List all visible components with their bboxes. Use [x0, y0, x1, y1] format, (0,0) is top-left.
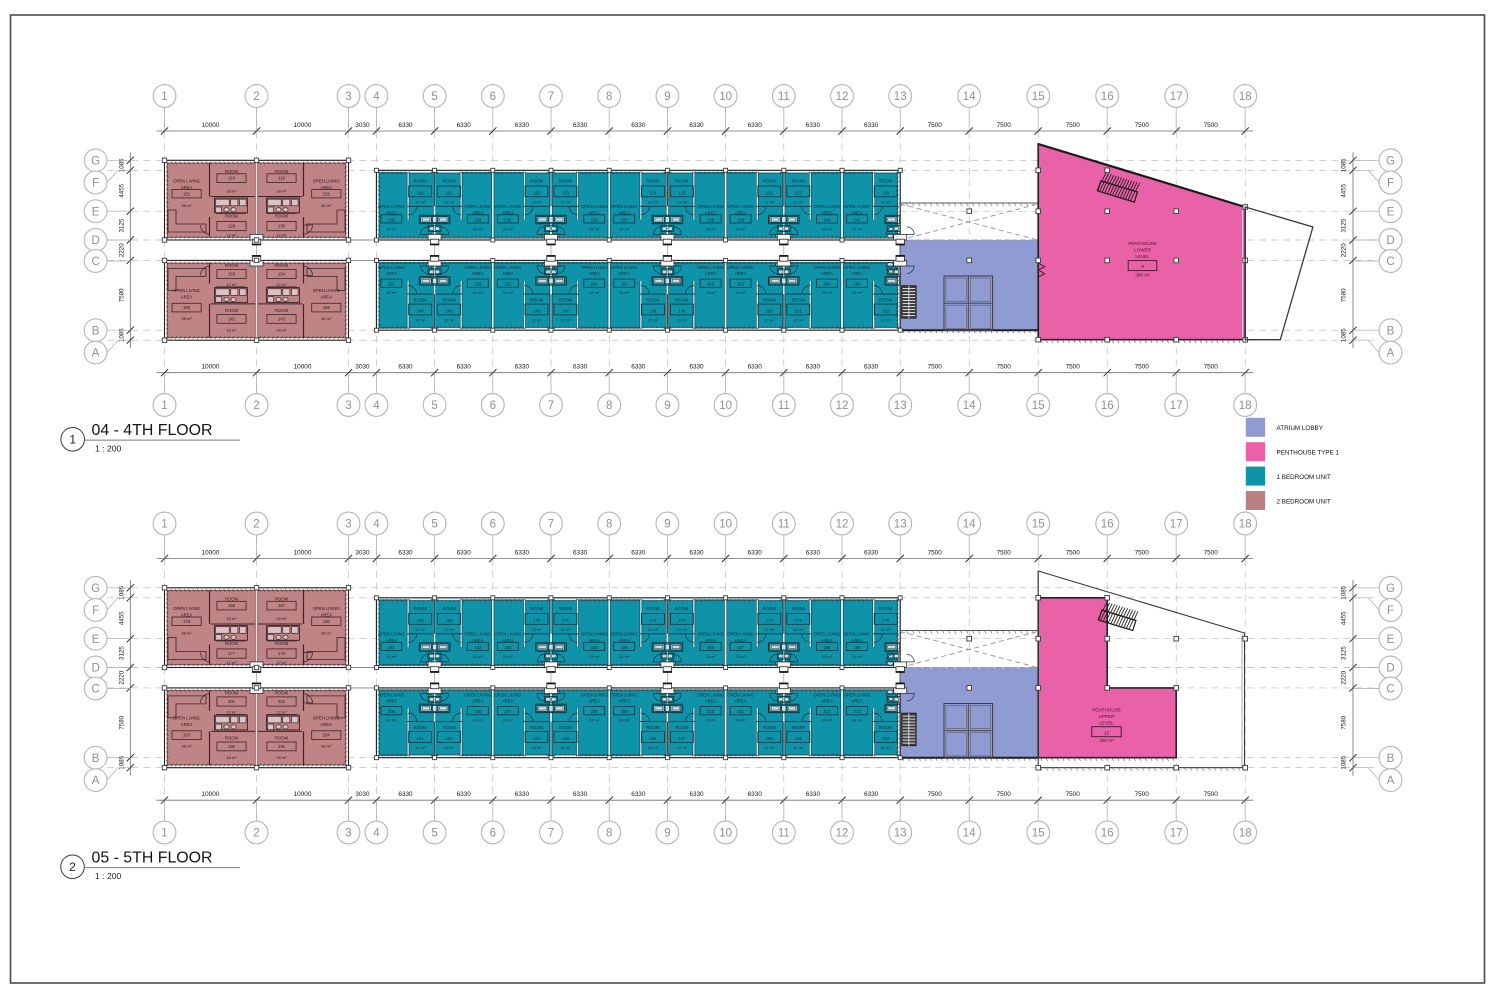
svg-text:7580: 7580 — [1341, 288, 1348, 302]
svg-text:4: 4 — [373, 91, 380, 103]
svg-text:154: 154 — [278, 272, 286, 277]
svg-text:ROOM: ROOM — [559, 179, 573, 184]
svg-text:ROOM: ROOM — [225, 308, 239, 313]
svg-text:132: 132 — [323, 191, 331, 196]
svg-text:2: 2 — [253, 828, 259, 840]
svg-text:38 m²: 38 m² — [321, 631, 332, 636]
svg-text:LEVEL: LEVEL — [1135, 254, 1150, 259]
svg-text:6330: 6330 — [689, 122, 704, 129]
svg-text:ROOM: ROOM — [559, 606, 573, 611]
svg-text:OPEN LIVING: OPEN LIVING — [378, 265, 405, 270]
svg-text:ROOM: ROOM — [559, 297, 573, 302]
svg-text:ROOM: ROOM — [414, 606, 428, 611]
svg-text:OPEN LIVING: OPEN LIVING — [727, 204, 754, 209]
svg-text:D: D — [91, 663, 99, 675]
svg-text:AREA: AREA — [321, 612, 333, 617]
svg-text:ROOM: ROOM — [763, 606, 777, 611]
svg-text:38 m²: 38 m² — [321, 203, 332, 208]
svg-text:193: 193 — [446, 736, 454, 741]
svg-text:24 m²: 24 m² — [473, 227, 484, 232]
svg-text:1085: 1085 — [1341, 328, 1348, 342]
svg-text:398 m²: 398 m² — [1135, 272, 1150, 277]
svg-text:E: E — [92, 634, 100, 646]
svg-text:24 m²: 24 m² — [852, 718, 863, 723]
svg-text:38 m²: 38 m² — [181, 316, 192, 321]
svg-text:OPEN LIVING: OPEN LIVING — [727, 692, 754, 697]
svg-text:B: B — [92, 325, 100, 337]
svg-text:10000: 10000 — [202, 549, 220, 556]
svg-text:OPEN LIVING: OPEN LIVING — [814, 204, 841, 209]
svg-text:17: 17 — [1170, 91, 1183, 103]
svg-text:A: A — [1387, 775, 1395, 787]
svg-text:E: E — [1387, 634, 1395, 646]
svg-text:ROOM: ROOM — [879, 725, 893, 730]
svg-text:OPEN LIVING: OPEN LIVING — [313, 606, 340, 611]
svg-text:AREA: AREA — [321, 722, 333, 727]
svg-text:5: 5 — [431, 400, 437, 412]
svg-text:18: 18 — [1239, 519, 1252, 531]
svg-text:6330: 6330 — [689, 791, 704, 798]
svg-text:6330: 6330 — [806, 122, 821, 129]
svg-text:12 m²: 12 m² — [444, 627, 455, 632]
svg-text:15: 15 — [1032, 828, 1045, 840]
svg-text:4455: 4455 — [1340, 611, 1347, 625]
svg-text:137: 137 — [621, 217, 629, 222]
svg-text:ROOM: ROOM — [646, 725, 660, 730]
svg-text:12 m²: 12 m² — [560, 317, 571, 322]
svg-text:AREA: AREA — [386, 699, 398, 704]
svg-text:18 m²: 18 m² — [276, 328, 287, 333]
svg-text:2220: 2220 — [1341, 243, 1348, 257]
svg-text:4455: 4455 — [118, 611, 125, 625]
svg-text:12 m²: 12 m² — [648, 627, 659, 632]
svg-text:184: 184 — [591, 645, 599, 650]
svg-text:10: 10 — [719, 519, 732, 531]
svg-text:24 m²: 24 m² — [386, 654, 397, 659]
svg-text:5: 5 — [431, 91, 437, 103]
svg-text:OPEN LIVING: OPEN LIVING — [378, 632, 405, 637]
svg-text:24 m²: 24 m² — [822, 718, 833, 723]
svg-text:6330: 6330 — [515, 791, 530, 798]
svg-text:125: 125 — [678, 190, 686, 195]
svg-text:16: 16 — [1101, 519, 1114, 531]
svg-text:7: 7 — [548, 519, 554, 531]
svg-text:1085: 1085 — [1341, 585, 1348, 599]
svg-text:7500: 7500 — [1066, 791, 1081, 798]
svg-text:12: 12 — [1104, 730, 1110, 735]
svg-text:7: 7 — [548, 91, 554, 103]
svg-text:139: 139 — [737, 217, 745, 222]
svg-text:PENTHOUSE: PENTHOUSE — [1092, 708, 1121, 713]
svg-text:12 m²: 12 m² — [881, 199, 892, 204]
svg-text:18: 18 — [1239, 91, 1252, 103]
svg-text:12 m²: 12 m² — [226, 660, 237, 665]
svg-text:15: 15 — [1032, 91, 1045, 103]
svg-text:119: 119 — [278, 176, 285, 181]
svg-text:3030: 3030 — [355, 364, 370, 371]
svg-text:141: 141 — [854, 217, 862, 222]
svg-text:10: 10 — [719, 828, 732, 840]
svg-text:AREA: AREA — [735, 271, 747, 276]
svg-text:12 m²: 12 m² — [648, 745, 659, 750]
svg-text:ROOM: ROOM — [530, 725, 544, 730]
svg-text:24 m²: 24 m² — [705, 718, 716, 723]
svg-text:7500: 7500 — [1066, 549, 1081, 556]
svg-text:OPEN LIVING: OPEN LIVING — [378, 204, 405, 209]
svg-text:7580: 7580 — [119, 715, 126, 729]
svg-text:6330: 6330 — [689, 549, 704, 556]
svg-text:ROOM: ROOM — [879, 606, 893, 611]
svg-text:12 m²: 12 m² — [560, 745, 571, 750]
svg-text:152: 152 — [882, 308, 890, 313]
svg-text:OPEN LIVING: OPEN LIVING — [844, 265, 871, 270]
svg-text:6330: 6330 — [457, 122, 472, 129]
svg-text:10000: 10000 — [294, 122, 312, 129]
svg-text:24 m²: 24 m² — [386, 718, 397, 723]
svg-text:OPEN LIVING: OPEN LIVING — [313, 179, 340, 184]
svg-text:203: 203 — [183, 733, 191, 738]
svg-text:176: 176 — [882, 618, 890, 623]
svg-text:4455: 4455 — [1341, 183, 1348, 197]
svg-text:134: 134 — [474, 217, 482, 222]
svg-text:159: 159 — [504, 282, 512, 287]
svg-text:AREA: AREA — [705, 699, 717, 704]
svg-text:24 m²: 24 m² — [386, 290, 397, 295]
svg-text:10000: 10000 — [202, 791, 220, 798]
svg-text:7500: 7500 — [1066, 364, 1081, 371]
svg-text:160: 160 — [591, 282, 599, 287]
svg-text:10000: 10000 — [294, 364, 312, 371]
svg-text:153: 153 — [228, 272, 236, 277]
svg-text:12 m²: 12 m² — [648, 317, 659, 322]
svg-text:24 m²: 24 m² — [619, 227, 630, 232]
svg-text:ROOM: ROOM — [763, 179, 777, 184]
svg-text:LEVEL: LEVEL — [1099, 721, 1114, 726]
svg-text:7500: 7500 — [1135, 549, 1150, 556]
svg-text:145: 145 — [446, 308, 454, 313]
svg-text:ROOM: ROOM — [443, 725, 457, 730]
svg-text:AREA: AREA — [618, 699, 630, 704]
svg-text:171: 171 — [562, 618, 570, 623]
svg-text:ROOM: ROOM — [225, 214, 239, 219]
svg-text:136: 136 — [591, 217, 599, 222]
svg-text:6: 6 — [490, 828, 496, 840]
svg-text:12 m²: 12 m² — [764, 745, 775, 750]
svg-text:143: 143 — [278, 317, 286, 322]
svg-text:18: 18 — [1239, 828, 1252, 840]
svg-text:12 m²: 12 m² — [226, 232, 237, 237]
svg-text:1: 1 — [69, 433, 76, 447]
svg-text:207: 207 — [504, 709, 512, 714]
svg-text:3125: 3125 — [1341, 646, 1348, 660]
svg-text:6330: 6330 — [573, 364, 588, 371]
svg-text:ROOM: ROOM — [879, 179, 893, 184]
svg-text:7500: 7500 — [1204, 791, 1219, 798]
svg-text:12 m²: 12 m² — [276, 660, 287, 665]
svg-text:D: D — [1386, 663, 1394, 675]
svg-text:12 m²: 12 m² — [276, 282, 287, 287]
svg-text:AREA: AREA — [321, 185, 333, 190]
svg-text:7500: 7500 — [997, 549, 1012, 556]
svg-text:194: 194 — [533, 736, 541, 741]
svg-text:10000: 10000 — [294, 791, 312, 798]
svg-text:180: 180 — [323, 619, 331, 624]
svg-text:6330: 6330 — [806, 791, 821, 798]
svg-text:AREA: AREA — [705, 271, 717, 276]
svg-text:10000: 10000 — [202, 364, 220, 371]
svg-text:ROOM: ROOM — [530, 606, 544, 611]
svg-text:ROOM: ROOM — [646, 297, 660, 302]
svg-text:8: 8 — [606, 91, 612, 103]
svg-text:213: 213 — [854, 709, 862, 714]
svg-text:205: 205 — [388, 709, 396, 714]
svg-text:C: C — [1386, 256, 1394, 268]
svg-text:16: 16 — [1101, 91, 1114, 103]
svg-text:OPEN LIVING: OPEN LIVING — [464, 204, 491, 209]
svg-text:123: 123 — [562, 190, 570, 195]
svg-text:6330: 6330 — [806, 549, 821, 556]
svg-text:12 m²: 12 m² — [560, 199, 571, 204]
svg-text:6: 6 — [490, 91, 496, 103]
svg-text:4: 4 — [373, 519, 380, 531]
svg-text:AREA: AREA — [588, 271, 600, 276]
svg-text:2: 2 — [69, 860, 76, 874]
svg-text:6330: 6330 — [631, 791, 646, 798]
svg-text:133: 133 — [388, 217, 396, 222]
svg-text:165: 165 — [854, 282, 862, 287]
svg-text:7500: 7500 — [1135, 122, 1150, 129]
svg-text:ROOM: ROOM — [414, 725, 428, 730]
svg-text:D: D — [1386, 235, 1394, 247]
svg-text:6330: 6330 — [748, 122, 763, 129]
svg-text:ROOM: ROOM — [763, 725, 777, 730]
svg-text:12 m²: 12 m² — [415, 745, 426, 750]
svg-text:ROOM: ROOM — [443, 179, 457, 184]
svg-text:A: A — [1387, 348, 1395, 360]
svg-text:12 m²: 12 m² — [276, 232, 287, 237]
svg-text:3: 3 — [345, 519, 351, 531]
svg-text:12 m²: 12 m² — [531, 627, 542, 632]
svg-text:AREA: AREA — [851, 271, 863, 276]
svg-text:6330: 6330 — [748, 364, 763, 371]
svg-text:129: 129 — [228, 224, 236, 229]
svg-text:11: 11 — [778, 519, 790, 531]
svg-text:2220: 2220 — [1341, 670, 1348, 684]
svg-text:C: C — [91, 684, 99, 696]
svg-text:12 m²: 12 m² — [415, 317, 426, 322]
svg-text:ROOM: ROOM — [414, 179, 428, 184]
svg-text:24 m²: 24 m² — [503, 290, 514, 295]
svg-text:ROOM: ROOM — [792, 725, 806, 730]
svg-text:135: 135 — [504, 217, 512, 222]
svg-text:142: 142 — [228, 317, 236, 322]
svg-text:24 m²: 24 m² — [822, 654, 833, 659]
svg-text:G: G — [1386, 583, 1395, 595]
svg-text:181: 181 — [388, 645, 396, 650]
svg-text:24 m²: 24 m² — [589, 290, 600, 295]
svg-text:OPEN LIVING: OPEN LIVING — [494, 632, 521, 637]
svg-text:179: 179 — [183, 619, 191, 624]
svg-text:7580: 7580 — [1341, 715, 1348, 729]
svg-text:OPEN LIVING: OPEN LIVING — [814, 265, 841, 270]
svg-text:OPEN LIVING: OPEN LIVING — [313, 288, 340, 293]
svg-text:162: 162 — [707, 282, 715, 287]
svg-text:17: 17 — [1170, 828, 1183, 840]
svg-text:OPEN LIVING: OPEN LIVING — [378, 692, 405, 697]
svg-text:8: 8 — [606, 519, 612, 531]
svg-text:ROOM: ROOM — [792, 606, 806, 611]
svg-text:24 m²: 24 m² — [822, 227, 833, 232]
svg-text:10000: 10000 — [202, 122, 220, 129]
svg-text:24 m²: 24 m² — [473, 718, 484, 723]
svg-text:G: G — [91, 155, 100, 167]
svg-text:AREA: AREA — [588, 699, 600, 704]
svg-text:18 m²: 18 m² — [276, 188, 287, 193]
svg-text:3: 3 — [345, 828, 351, 840]
svg-text:191: 191 — [278, 744, 286, 749]
svg-text:174: 174 — [766, 618, 774, 623]
svg-text:128: 128 — [882, 190, 890, 195]
svg-text:24 m²: 24 m² — [822, 290, 833, 295]
svg-text:9: 9 — [664, 828, 670, 840]
svg-text:B: B — [1387, 753, 1395, 765]
svg-text:148: 148 — [649, 308, 657, 313]
svg-text:OPEN LIVING: OPEN LIVING — [611, 692, 638, 697]
svg-text:ROOM: ROOM — [559, 725, 573, 730]
svg-text:A: A — [92, 348, 100, 360]
svg-text:1: 1 — [161, 828, 167, 840]
svg-text:3125: 3125 — [119, 646, 126, 660]
svg-text:7: 7 — [548, 828, 554, 840]
svg-text:24 m²: 24 m² — [735, 718, 746, 723]
svg-text:24 m²: 24 m² — [852, 227, 863, 232]
svg-text:2: 2 — [253, 400, 259, 412]
svg-text:6: 6 — [490, 400, 496, 412]
svg-text:C: C — [91, 256, 99, 268]
svg-text:118: 118 — [228, 176, 235, 181]
svg-text:C: C — [1386, 684, 1394, 696]
svg-text:10: 10 — [719, 91, 732, 103]
svg-text:200 m²: 200 m² — [1099, 738, 1114, 743]
svg-text:197: 197 — [678, 736, 686, 741]
svg-text:OPEN LIVING: OPEN LIVING — [844, 632, 871, 637]
svg-text:24 m²: 24 m² — [852, 290, 863, 295]
svg-text:200: 200 — [882, 736, 890, 741]
svg-text:5: 5 — [431, 828, 437, 840]
svg-text:24 m²: 24 m² — [735, 290, 746, 295]
svg-text:14: 14 — [963, 400, 976, 412]
svg-text:12 m²: 12 m² — [764, 199, 775, 204]
svg-text:ROOM: ROOM — [646, 606, 660, 611]
svg-text:177: 177 — [228, 651, 236, 656]
svg-text:ROOM: ROOM — [443, 297, 457, 302]
svg-text:199: 199 — [795, 736, 803, 741]
svg-text:206: 206 — [474, 709, 482, 714]
svg-text:ROOM: ROOM — [443, 606, 457, 611]
svg-text:OPEN LIVING: OPEN LIVING — [581, 265, 608, 270]
svg-text:3030: 3030 — [355, 791, 370, 798]
svg-text:175: 175 — [795, 618, 803, 623]
svg-text:201: 201 — [228, 699, 236, 704]
svg-text:38 m²: 38 m² — [321, 316, 332, 321]
svg-text:OPEN LIVING: OPEN LIVING — [464, 632, 491, 637]
svg-text:AREA: AREA — [472, 271, 484, 276]
svg-text:157: 157 — [388, 282, 396, 287]
svg-text:AREA: AREA — [321, 294, 333, 299]
svg-text:OPEN LIVING: OPEN LIVING — [814, 632, 841, 637]
svg-text:ROOM: ROOM — [225, 690, 239, 695]
svg-text:198: 198 — [766, 736, 774, 741]
svg-text:ROOM: ROOM — [675, 297, 689, 302]
svg-text:1: 1 — [161, 519, 167, 531]
svg-text:2: 2 — [253, 519, 259, 531]
svg-text:208: 208 — [591, 709, 599, 714]
svg-text:204: 204 — [323, 733, 331, 738]
svg-text:161: 161 — [621, 282, 629, 287]
svg-text:6330: 6330 — [631, 549, 646, 556]
svg-text:AREA: AREA — [181, 294, 193, 299]
svg-text:24 m²: 24 m² — [852, 654, 863, 659]
svg-text:9: 9 — [664, 91, 670, 103]
svg-text:178: 178 — [278, 651, 286, 656]
svg-text:210: 210 — [707, 709, 715, 714]
svg-text:38 m²: 38 m² — [181, 203, 192, 208]
svg-text:OPEN LIVING: OPEN LIVING — [844, 692, 871, 697]
svg-text:OPEN LIVING: OPEN LIVING — [313, 716, 340, 721]
svg-text:14: 14 — [963, 519, 976, 531]
svg-text:6330: 6330 — [398, 549, 413, 556]
svg-text:6330: 6330 — [631, 364, 646, 371]
svg-text:G: G — [91, 583, 100, 595]
svg-text:F: F — [92, 605, 99, 617]
svg-text:169: 169 — [446, 618, 454, 623]
svg-text:6330: 6330 — [864, 549, 879, 556]
svg-text:A: A — [92, 775, 100, 787]
svg-text:17: 17 — [1170, 519, 1183, 531]
svg-text:ROOM: ROOM — [414, 297, 428, 302]
svg-text:AREA: AREA — [851, 699, 863, 704]
svg-text:172: 172 — [649, 618, 657, 623]
svg-text:ROOM: ROOM — [675, 606, 689, 611]
svg-text:AREA: AREA — [181, 612, 193, 617]
svg-text:13: 13 — [894, 828, 907, 840]
svg-text:7580: 7580 — [119, 288, 126, 302]
svg-text:OPEN LIVING: OPEN LIVING — [697, 204, 724, 209]
svg-text:12: 12 — [836, 828, 849, 840]
svg-text:170: 170 — [533, 618, 541, 623]
svg-text:24 m²: 24 m² — [503, 654, 514, 659]
svg-text:9: 9 — [664, 519, 670, 531]
svg-text:AREA: AREA — [821, 271, 833, 276]
svg-text:24 m²: 24 m² — [589, 654, 600, 659]
svg-text:OPEN LIVING: OPEN LIVING — [844, 204, 871, 209]
svg-text:8: 8 — [606, 828, 612, 840]
svg-text:150: 150 — [766, 308, 774, 313]
svg-text:7500: 7500 — [928, 122, 943, 129]
svg-text:7500: 7500 — [1204, 549, 1219, 556]
svg-text:OPEN LIVING: OPEN LIVING — [464, 692, 491, 697]
svg-text:6330: 6330 — [457, 364, 472, 371]
svg-text:24 m²: 24 m² — [705, 227, 716, 232]
svg-text:12 m²: 12 m² — [677, 627, 688, 632]
svg-text:B: B — [92, 753, 100, 765]
svg-text:24 m²: 24 m² — [503, 227, 514, 232]
svg-text:OPEN LIVING: OPEN LIVING — [173, 179, 200, 184]
svg-text:188: 188 — [824, 645, 832, 650]
svg-text:144: 144 — [417, 308, 425, 313]
svg-text:158: 158 — [474, 282, 482, 287]
svg-text:2220: 2220 — [119, 670, 126, 684]
